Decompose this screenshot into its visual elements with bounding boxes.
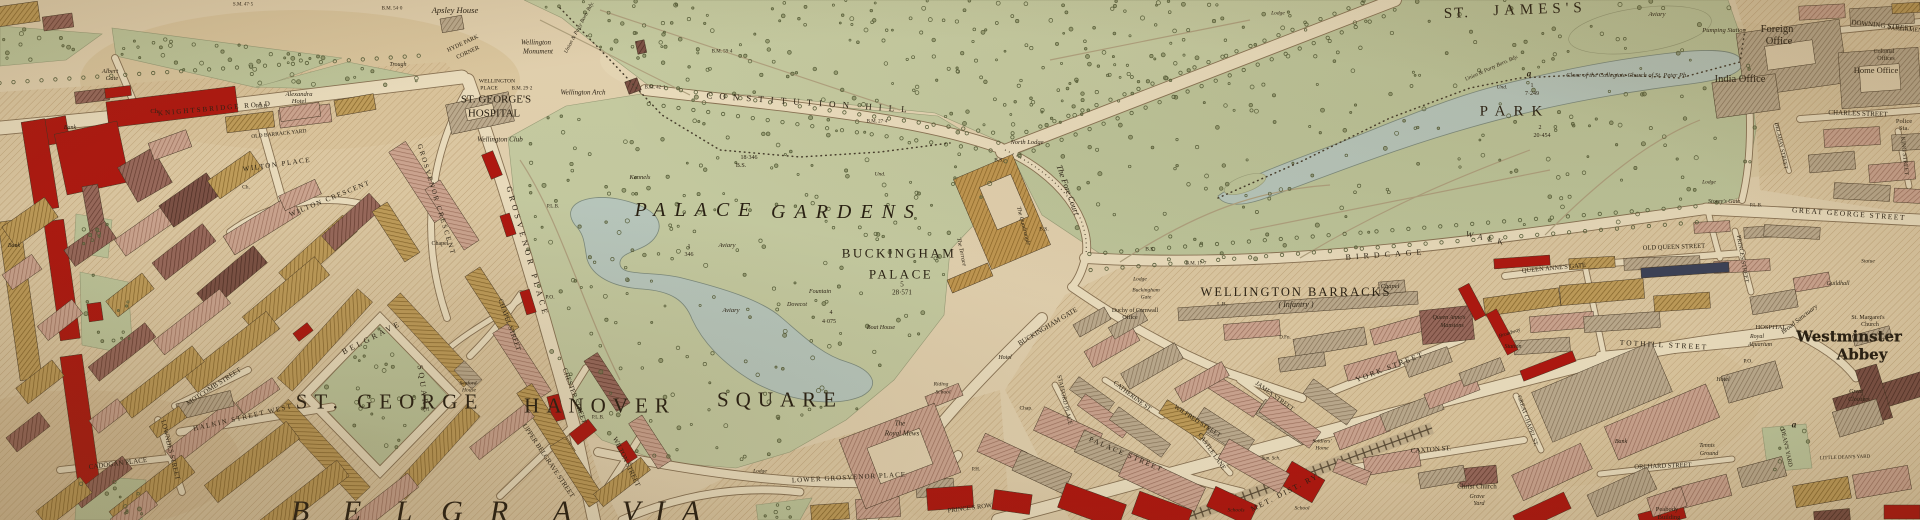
building-block — [1868, 161, 1915, 183]
building-block — [1569, 256, 1616, 269]
building-block — [1894, 188, 1920, 204]
building-block — [54, 121, 129, 195]
building-block — [1892, 133, 1920, 151]
building-block — [1419, 305, 1474, 344]
building-block — [926, 485, 973, 510]
building-block — [1884, 505, 1920, 519]
building-block — [810, 503, 849, 520]
building-block — [1834, 183, 1891, 202]
building-block — [87, 302, 103, 322]
map-canvas — [0, 0, 1920, 520]
building-block — [1694, 221, 1731, 234]
building-block — [1379, 280, 1406, 294]
building-block — [1892, 2, 1920, 13]
historic-london-map: PALACEGARDENSBUCKINGHAMPALACE528·571ST.J… — [0, 0, 1920, 520]
building-block — [1799, 4, 1846, 20]
building-block — [1824, 127, 1881, 148]
building-block — [1808, 151, 1855, 173]
building-block — [1859, 64, 1901, 93]
